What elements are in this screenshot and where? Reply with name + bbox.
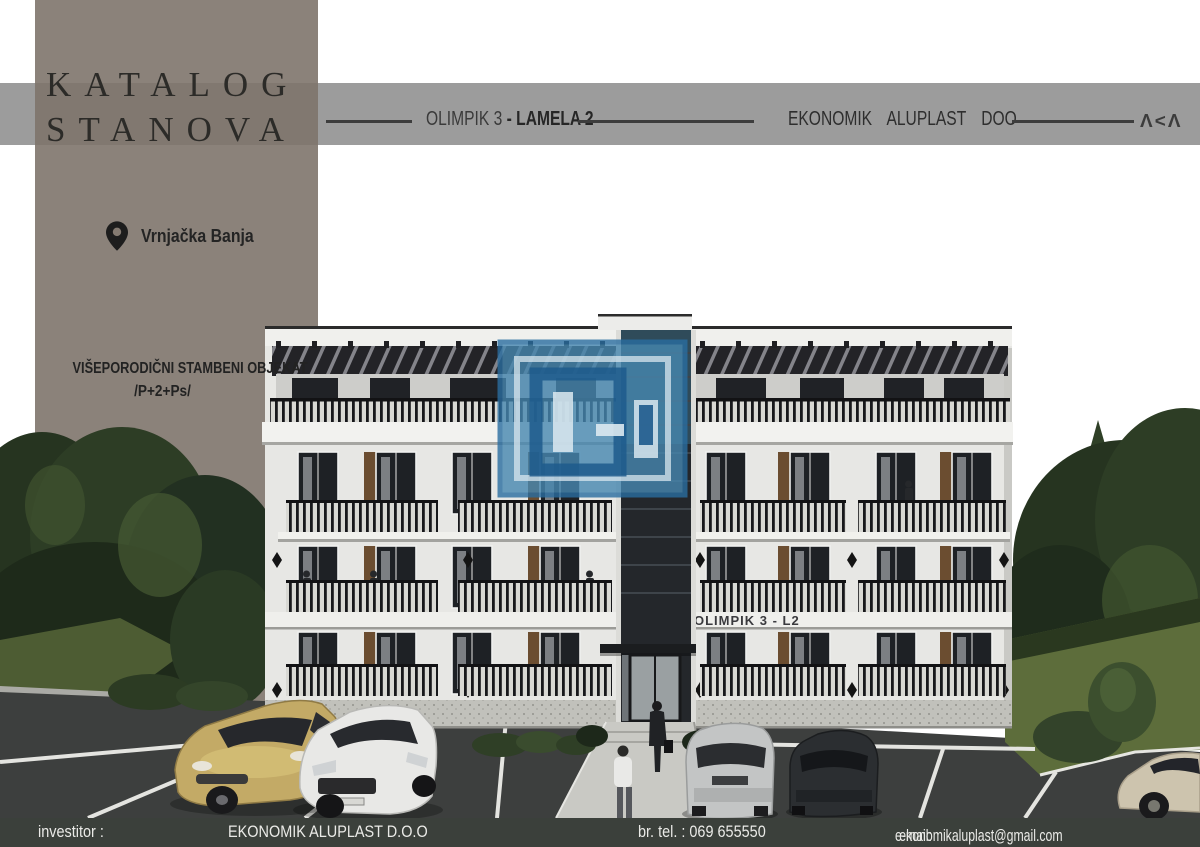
project-dash: - bbox=[507, 108, 512, 130]
header-divider-3 bbox=[1012, 120, 1134, 123]
investor-label: investitor : bbox=[38, 822, 104, 842]
location-pin-icon bbox=[106, 221, 128, 251]
catalog-title: KATALOG STANOVA bbox=[46, 62, 299, 152]
footer-bar: investitor : EKONOMIK ALUPLAST D.O.O br.… bbox=[0, 818, 1200, 847]
catalog-title-line1: KATALOG bbox=[46, 62, 299, 107]
aka-logo: Λ<Λ bbox=[1140, 111, 1183, 132]
project-title: OLIMPIK 3 - LAMELA 2 bbox=[426, 108, 594, 131]
footer-phone: br. tel. : 069 655550 bbox=[638, 822, 766, 842]
investor-name: EKONOMIK ALUPLAST D.O.O bbox=[228, 822, 428, 842]
catalog-title-line2: STANOVA bbox=[46, 107, 299, 152]
building-type-label: VIŠEPORODIČNI STAMBENI OBJEKAT bbox=[73, 360, 253, 378]
dark-car bbox=[786, 730, 882, 820]
building-floors-label: /P+2+Ps/ bbox=[67, 383, 258, 401]
project-name: OLIMPIK 3 bbox=[426, 108, 502, 130]
building-sign: OLIMPIK 3 - L2 bbox=[694, 613, 800, 628]
project-section: LAMELA 2 bbox=[516, 108, 593, 130]
location-row: Vrnjačka Banja bbox=[106, 221, 269, 251]
email-address: ekonomikaluplast@gmail.com bbox=[899, 826, 1062, 846]
catalog-cover-page: OLIMPIK 3 - L2 bbox=[0, 0, 1200, 847]
header-divider-1 bbox=[326, 120, 412, 123]
header-divider-2 bbox=[578, 120, 754, 123]
company-name: EKONOMIK ALUPLAST DOO bbox=[788, 108, 1017, 131]
watermark-logo bbox=[500, 342, 685, 495]
silver-van bbox=[682, 723, 778, 822]
building-type-block: VIŠEPORODIČNI STAMBENI OBJEKAT /P+2+Ps/ bbox=[50, 360, 275, 401]
location-label: Vrnjačka Banja bbox=[141, 226, 254, 247]
footer-email: e-mail: ekonomikaluplast@gmail.com bbox=[895, 822, 899, 842]
